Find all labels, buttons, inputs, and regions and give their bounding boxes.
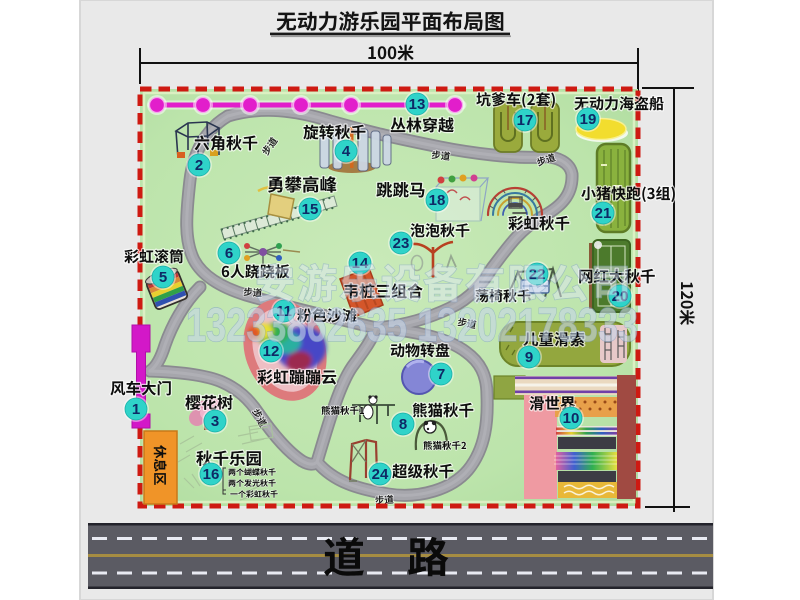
svg-text:3: 3 [211,413,219,430]
svg-text:13: 13 [409,96,426,113]
svg-text:17: 17 [517,112,534,129]
svg-text:19: 19 [580,111,597,128]
svg-text:23: 23 [393,235,410,252]
svg-text:7: 7 [437,366,445,383]
svg-text:21: 21 [595,205,612,222]
svg-text:5: 5 [159,269,167,286]
svg-text:9: 9 [525,349,533,366]
svg-text:24: 24 [372,466,389,483]
svg-text:2: 2 [195,157,203,174]
svg-text:4: 4 [342,143,351,160]
svg-text:13233862635 13202178333: 13233862635 13202178333 [186,298,638,351]
svg-text:15: 15 [302,201,319,218]
svg-text:8: 8 [399,416,407,433]
svg-text:6: 6 [225,245,233,262]
svg-text:1: 1 [132,401,140,418]
svg-text:18: 18 [429,192,446,209]
svg-text:16: 16 [203,466,220,483]
svg-text:10: 10 [563,410,580,427]
